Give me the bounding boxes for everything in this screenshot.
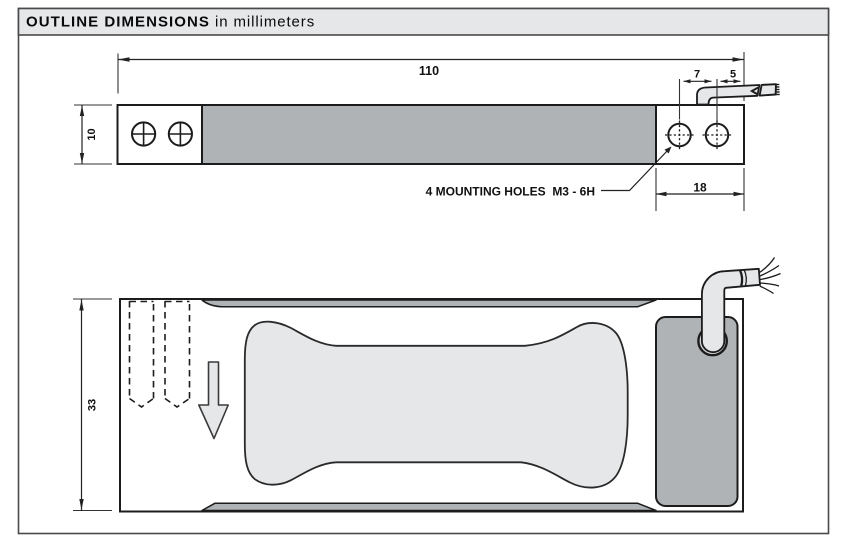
svg-text:7: 7 [694, 69, 700, 81]
svg-text:18: 18 [693, 180, 707, 194]
svg-text:OUTLINE DIMENSIONS in millimet: OUTLINE DIMENSIONS in millimeters [26, 14, 315, 31]
svg-text:4 MOUNTING HOLES M3 - 6H: 4 MOUNTING HOLES M3 - 6H [426, 185, 595, 199]
svg-text:5: 5 [730, 69, 736, 81]
svg-text:33: 33 [86, 399, 98, 411]
svg-text:110: 110 [419, 64, 439, 78]
svg-text:10: 10 [86, 128, 98, 140]
